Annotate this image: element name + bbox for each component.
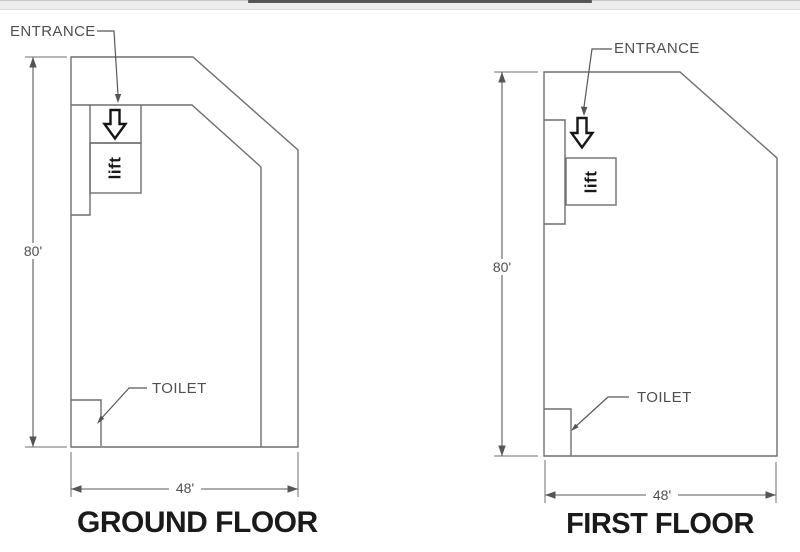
- first-height-dim-arrow-bottom: [498, 446, 505, 457]
- first-toilet-walls: [544, 409, 571, 456]
- first-lift-label: lift: [581, 170, 601, 193]
- first-lift-lobby-wall: [544, 120, 565, 224]
- ground-lift-label: lift: [106, 157, 126, 180]
- first-height-dim-arrow-top: [498, 72, 505, 83]
- ground-toilet-label: TOILET: [152, 380, 207, 397]
- first-floor-title: FIRST FLOOR: [550, 508, 770, 541]
- ground-entrance-leader-line: [97, 31, 118, 95]
- first-entrance-label: ENTRANCE: [614, 40, 700, 57]
- ground-entrance-label: ENTRANCE: [10, 23, 96, 40]
- ground-entrance-leader-arrowhead: [115, 94, 121, 103]
- ground-width-dimension-value: 48': [169, 480, 201, 496]
- ground-height-dim-arrow-top: [29, 57, 36, 68]
- ground-entrance-arrow-icon: [105, 110, 126, 139]
- ground-lift-lobby-wall: [71, 105, 90, 215]
- first-height-dimension-value: 80': [486, 259, 518, 275]
- first-entrance-leader-arrowhead: [581, 107, 588, 117]
- first-entrance-arrow-icon: [572, 118, 593, 148]
- ground-floor-plan: [25, 31, 298, 497]
- ground-width-dim-arrow-left: [71, 485, 82, 492]
- ground-lift-box: lift: [90, 143, 141, 193]
- first-toilet-label: TOILET: [637, 389, 692, 406]
- first-floor-plan: [494, 49, 777, 503]
- first-toilet-leader-line: [574, 397, 629, 428]
- plan-linework: [0, 0, 800, 552]
- ground-toilet-walls: [71, 400, 101, 446]
- first-lift-box: lift: [566, 158, 616, 205]
- ground-width-dim-arrow-right: [288, 485, 299, 492]
- ground-height-dimension-value: 80': [17, 243, 49, 259]
- first-width-dim-arrow-right: [766, 491, 777, 498]
- ground-floor-title: GROUND FLOOR: [77, 506, 297, 540]
- first-entrance-leader-line: [584, 49, 612, 107]
- first-width-dim-arrow-left: [545, 491, 556, 498]
- first-width-dimension-value: 48': [646, 487, 678, 503]
- floor-plan-drawing: ENTRANCE TOILET 80' 48' lift GROUND FLOO…: [0, 0, 800, 552]
- ground-height-dim-arrow-bottom: [29, 437, 36, 448]
- ground-toilet-leader-line: [100, 388, 147, 420]
